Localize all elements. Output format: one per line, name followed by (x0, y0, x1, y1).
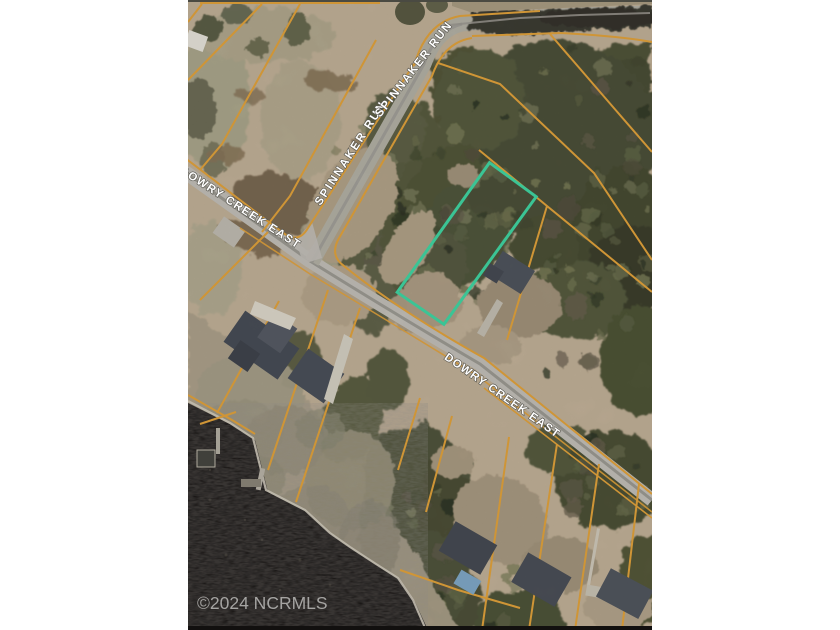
svg-text:©2024 NCRMLS: ©2024 NCRMLS (197, 593, 328, 613)
